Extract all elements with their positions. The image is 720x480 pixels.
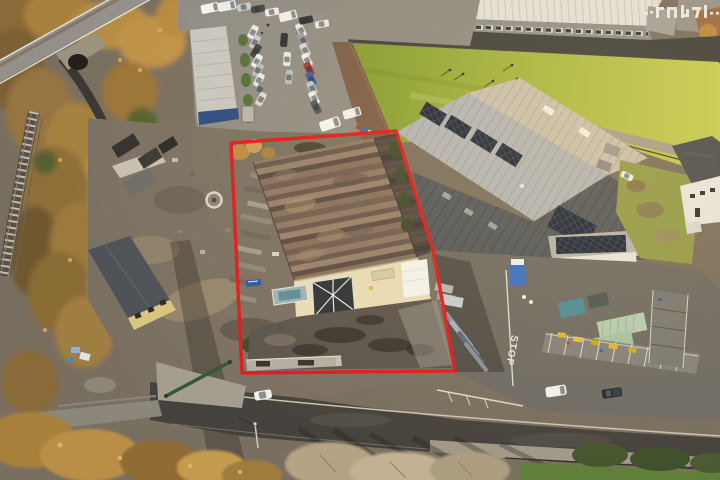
aerial-photo-canvas: STOP xyxy=(0,0,720,480)
aerial-photo: STOP xyxy=(0,0,720,480)
sunlight-overlay xyxy=(0,0,720,480)
